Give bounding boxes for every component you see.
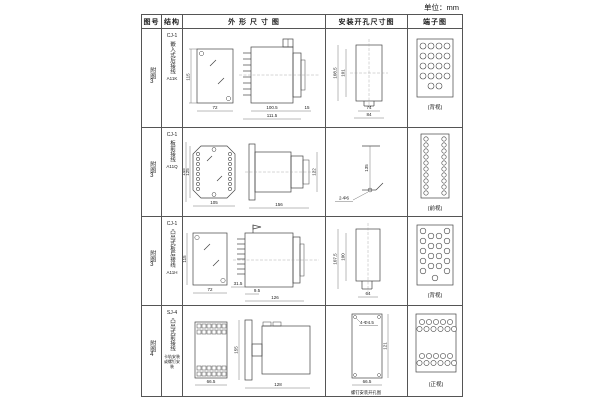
header-structure: 结构 — [162, 15, 183, 29]
table-row: 附图3 CJ-1 嵌入式后接线 A11K 115 72 — [142, 29, 463, 128]
dim-label: 125 — [185, 168, 190, 176]
terminal-cell: (正视) — [408, 306, 463, 397]
mount-cell: 107.5 100 64 — [326, 217, 408, 306]
mount-cell: 4-Φ4.5 121 66.5 螺钉安装开孔图 — [326, 306, 408, 397]
mount-drawing-a11h: 107.5 100 64 — [326, 217, 407, 305]
structure-cell: CJ-1 嵌入式后接线 A11K — [162, 29, 183, 128]
dim-label: 108.5 — [333, 67, 338, 79]
table-row: 附图3 CJ-1 板前接线 A11Q 145 125 — [142, 128, 463, 217]
structure-label: 嵌入式后接线 — [169, 41, 175, 74]
table-row: 附图4 SJ-4 凸出式前接线 卡轨安装或螺钉安装 66.5 — [142, 306, 463, 397]
dim-label: 111.5 — [267, 113, 278, 118]
dim-label: 31.5 — [234, 281, 243, 286]
structure-cell: SJ-4 凸出式前接线 卡轨安装或螺钉安装 — [162, 306, 183, 397]
dim-label: 105 — [210, 200, 218, 205]
header-fig-no: 图号 — [142, 15, 162, 29]
dim-label: 100 — [341, 253, 346, 261]
code-label: A11H — [167, 270, 178, 275]
fig-no-cell: 附图4 — [142, 306, 162, 397]
hole-note: 2-Φ6 — [339, 196, 350, 201]
model-label: CJ-1 — [167, 221, 178, 227]
terminal-view-label: (正视) — [429, 380, 444, 388]
code-label: A11K — [167, 76, 178, 81]
dim-label: 66.5 — [207, 379, 216, 384]
dim-label: 84 — [366, 112, 372, 117]
header-mount: 安装开孔尺寸图 — [326, 15, 408, 29]
dim-label: 64 — [365, 291, 371, 296]
hole-note: 4-Φ4.5 — [360, 320, 374, 325]
header-terminal: 端子图 — [408, 15, 463, 29]
outline-cell: 66.5 155 128 — [183, 306, 326, 397]
model-label: SJ-4 — [167, 310, 177, 316]
mount-drawing-a11q: 135 2-Φ6 — [326, 128, 407, 216]
dim-label: 115 — [186, 73, 191, 81]
model-label: CJ-1 — [167, 132, 178, 138]
fig-no-cell: 附图3 — [142, 217, 162, 306]
dim-label: 74 — [366, 105, 372, 110]
terminal-view-label: (前视) — [428, 204, 443, 212]
outline-drawing-a11q: 145 125 105 122 156 — [183, 128, 325, 216]
dim-label: 115 — [183, 255, 187, 263]
outline-drawing-sj4: 66.5 155 128 — [183, 306, 325, 396]
terminal-cell: (背视) — [408, 29, 463, 128]
structure-label: 凸出式板后接线 — [169, 229, 175, 268]
outline-cell: 145 125 105 122 156 — [183, 128, 326, 217]
dim-label: 122 — [312, 168, 317, 176]
terminal-drawing-a11h: (背视) — [408, 217, 462, 305]
dim-label: 72 — [207, 287, 213, 292]
terminal-cell: (背视) — [408, 217, 463, 306]
table-row: 附图3 CJ-1 凸出式板后接线 A11H 115 72 — [142, 217, 463, 306]
dim-label: 107.5 — [333, 253, 338, 265]
dim-label: 72 — [212, 105, 218, 110]
dim-label: 100.5 — [266, 105, 278, 110]
fig-no-label: 附图3 — [148, 161, 155, 179]
dim-label: 128 — [274, 382, 282, 387]
mounting-note: 卡轨安装或螺钉安装 — [163, 355, 181, 369]
dim-label: 101 — [341, 69, 346, 77]
fig-no-label: 附图3 — [148, 67, 155, 85]
terminal-view-label: (背视) — [428, 103, 443, 111]
terminal-drawing-a11k: (背视) — [408, 29, 462, 127]
terminal-cell: (前视) — [408, 128, 463, 217]
header-outline: 外 形 尺 寸 图 — [183, 15, 326, 29]
unit-label: 单位：mm — [424, 2, 459, 13]
code-label: A11Q — [166, 164, 177, 169]
fig-no-cell: 附图3 — [142, 29, 162, 128]
fig-no-label: 附图3 — [148, 250, 155, 268]
structure-cell: CJ-1 凸出式板后接线 A11H — [162, 217, 183, 306]
header-row: 图号 结构 外 形 尺 寸 图 安装开孔尺寸图 端子图 — [142, 15, 463, 29]
dim-label: 135 — [364, 164, 369, 172]
dim-label: 155 — [234, 346, 239, 354]
terminal-drawing-sj4: (正视) — [408, 306, 462, 396]
mount-cell: 135 2-Φ6 — [326, 128, 408, 217]
mount-drawing-a11k: 108.5 101 74 84 — [326, 29, 407, 127]
terminal-drawing-a11q: (前视) — [408, 128, 462, 216]
structure-cell: CJ-1 板前接线 A11Q — [162, 128, 183, 217]
spec-table: 图号 结构 外 形 尺 寸 图 安装开孔尺寸图 端子图 附图3 CJ-1 嵌入式… — [141, 14, 463, 397]
fig-no-cell: 附图3 — [142, 128, 162, 217]
mount-cell: 108.5 101 74 84 — [326, 29, 408, 128]
dim-label: 121 — [383, 342, 388, 350]
outline-drawing-a11k: 115 72 100.5 15 111.5 — [183, 29, 325, 127]
dim-label: 9.5 — [254, 288, 261, 293]
outline-cell: 115 72 100.5 15 111.5 — [183, 29, 326, 128]
structure-label: 板前接线 — [169, 140, 175, 162]
outline-cell: 115 72 31.5 9.5 126 — [183, 217, 326, 306]
dim-label: 156 — [275, 202, 283, 207]
outline-drawing-a11h: 115 72 31.5 9.5 126 — [183, 217, 325, 305]
mount-caption: 螺钉安装开孔图 — [351, 389, 381, 396]
dim-label: 126 — [271, 295, 279, 300]
fig-no-label: 附图4 — [148, 340, 155, 358]
terminal-view-label: (背视) — [428, 291, 443, 299]
dim-label: 15 — [304, 105, 310, 110]
mount-drawing-sj4: 4-Φ4.5 121 66.5 螺钉安装开孔图 — [326, 306, 407, 396]
dim-label: 66.5 — [363, 379, 372, 384]
model-label: CJ-1 — [167, 33, 178, 39]
structure-label: 凸出式前接线 — [169, 318, 175, 351]
